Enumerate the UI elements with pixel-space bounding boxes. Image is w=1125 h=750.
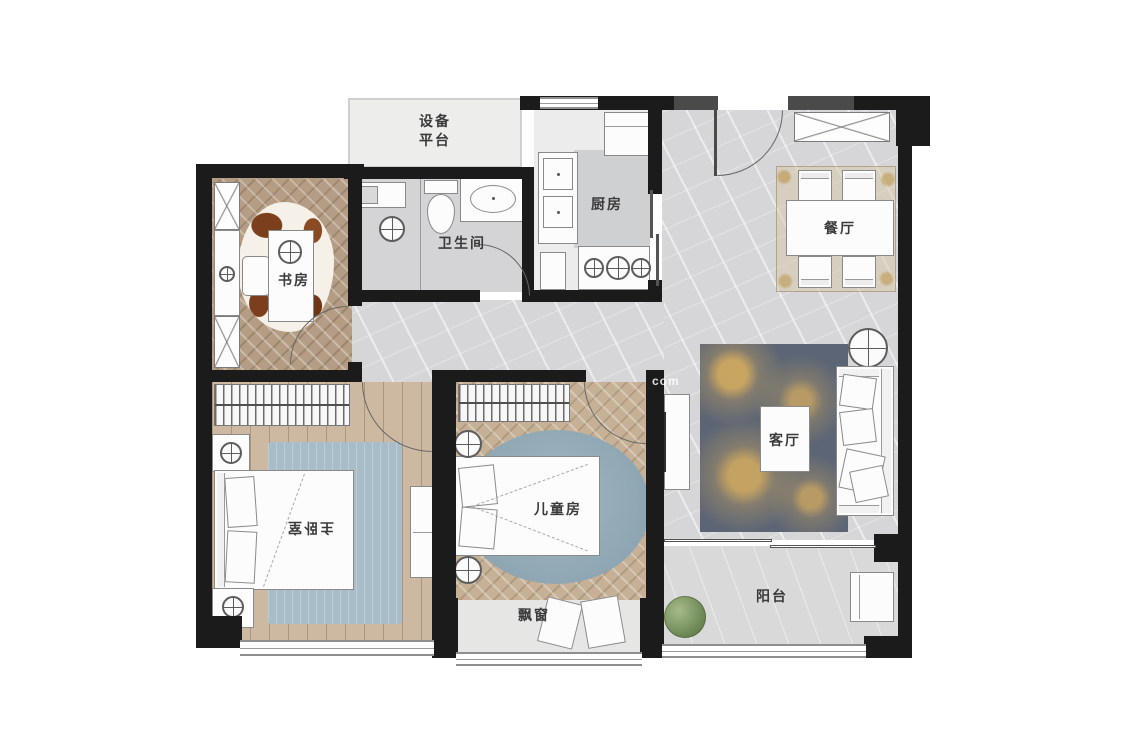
bathroom-cabinet-basin [360,186,378,204]
coffee-table [760,406,810,472]
floor-plan-canvas: 设备 平台 书房 卫生间 厨房 餐厅 客厅 主卧室 儿童房 飘窗 阳台 com [0,0,1125,750]
window-balcony [662,644,866,658]
chair-back-line [801,279,829,285]
living-side-table [848,328,888,368]
study-desk-fan [278,240,302,264]
fridge [604,112,654,156]
toilet-tank [424,180,458,194]
dining-chair-top-left [798,170,832,202]
stove-burner-left [584,258,604,278]
sofa-armrest-bottom [839,505,879,513]
washer-door-line [859,575,860,619]
stove-burner-center [606,256,630,280]
wall-left [196,164,212,634]
study-shelf-box-bottom [214,316,240,368]
wall-study-bathroom [348,167,362,294]
wall-kitchen-right-top [648,110,662,194]
kids-stool-top [454,430,482,458]
wall-corner-bottom-right [864,636,912,658]
window-master-bedroom [240,640,434,656]
wall-study-door-stub-top [348,294,362,306]
bay-pillow-right [580,595,626,649]
wall-bathroom-bottom [348,290,480,302]
wall-bathroom-top [344,167,534,179]
wall-bay-pier-left [432,598,458,658]
master-pillow-top [224,476,257,528]
headboard-line [217,473,225,587]
study-chair [242,256,270,296]
wall-balcony-door-block [874,534,898,562]
wall-corner-top-right [896,96,930,146]
kids-stool-bottom [454,556,482,584]
balcony-plant [664,596,706,638]
kids-wardrobe [458,384,570,422]
sofa-pillow-top [839,374,877,410]
stove-burner-right [631,258,651,278]
wall-study-bottom [196,370,352,382]
chair-back-line [801,173,829,179]
washbasin-faucet-dot [492,197,495,200]
equipment-platform-area [348,98,522,168]
dining-chair-bottom-right [842,256,876,288]
dining-chair-top-right [842,170,876,202]
master-lamp-top [220,442,242,464]
wall-hall-top-c [788,96,856,110]
study-shelf-box-top [214,182,240,230]
shower-partition-line [420,179,421,291]
wall-study-top [196,164,364,178]
dining-chair-bottom-left [798,256,832,288]
chair-back-line [845,279,873,285]
sofa-pillow-middle [839,408,877,446]
kitchen-sink-bottom-drain [557,211,560,214]
window-kitchen-top [540,97,598,109]
wall-kitchen-right-bottom [648,280,662,302]
wall-corner-bottom-left [196,616,242,648]
dining-table [786,200,894,256]
wall-study-door-stub-bottom [348,362,362,382]
balcony-sliding-door-panel-2 [770,545,876,548]
wall-bay-pier-right [640,598,664,658]
wall-master-top-pier [432,370,456,382]
window-bay [456,652,642,666]
balcony-washer [850,572,894,622]
wall-kids-top [456,370,586,382]
fridge-divider-line [605,126,653,127]
wall-right [898,140,912,650]
kitchen-sliding-door-panel-1 [650,190,653,238]
study-shelf-knob [219,266,235,282]
kitchen-sink-top-drain [557,173,560,176]
balcony-sliding-door-panel-1 [664,539,772,542]
wall-kitchen-bottom [522,290,662,302]
master-wardrobe [214,384,350,426]
kitchen-sliding-door-panel-2 [656,234,659,286]
wall-hall-top-b [674,96,718,110]
wall-kids-living [646,370,664,602]
kitchen-center-floor [574,150,650,248]
chair-back-line [845,173,873,179]
watermark-fragment: com [652,374,680,388]
entry-shoe-cabinet [794,112,890,142]
master-pillow-bottom [225,530,258,583]
wall-master-kids [432,382,456,600]
master-lamp-bottom [222,596,244,618]
kids-pillow-top [458,464,498,508]
kitchen-cabinet-bottom [540,252,566,290]
tv-cabinet [664,394,690,490]
shower-drain [379,216,405,242]
